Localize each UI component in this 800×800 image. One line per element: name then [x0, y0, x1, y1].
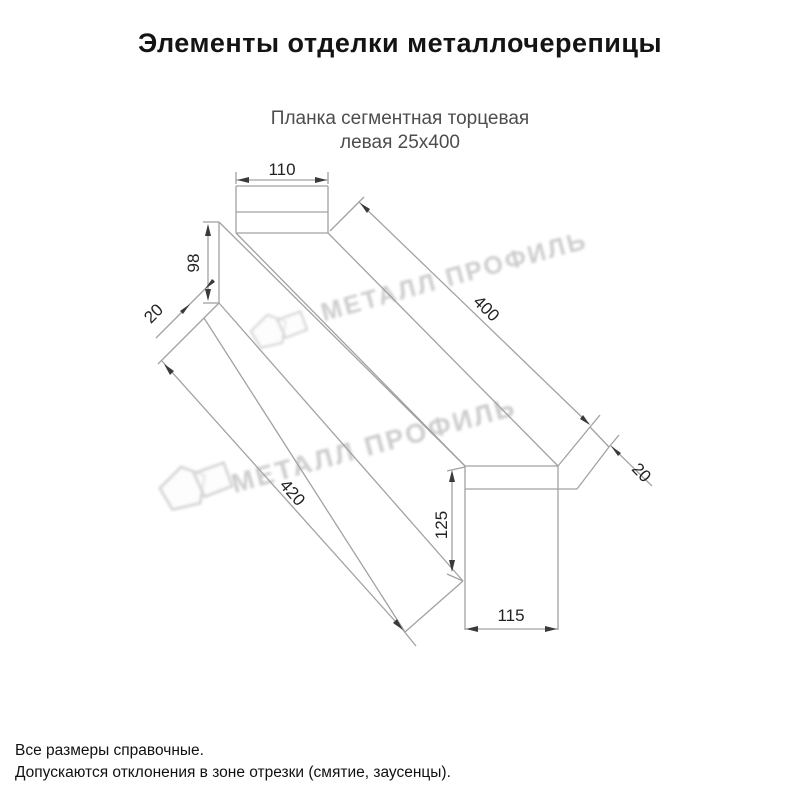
- footer-note-1: Все размеры справочные.: [15, 740, 451, 762]
- metall-profil-logo-icon: [246, 298, 312, 358]
- dimension-label-20: 20: [140, 300, 168, 328]
- drawing-sheet: Элементы отделки металлочерепицы Планка …: [0, 0, 800, 800]
- dimension-label-20: 20: [627, 459, 655, 487]
- dimension-label-110: 110: [268, 160, 295, 180]
- dimension-label-98: 98: [184, 254, 204, 273]
- dimension-label-115: 115: [497, 606, 524, 626]
- dimension-label-400: 400: [469, 292, 503, 326]
- footer-notes: Все размеры справочные. Допускаются откл…: [15, 740, 451, 784]
- watermark-text: МЕТАЛЛ ПРОФИЛЬ: [228, 391, 520, 500]
- product-subtitle: Планка сегментная торцевая левая 25х400: [0, 107, 800, 155]
- page-title: Элементы отделки металлочерепицы: [0, 28, 800, 59]
- product-subtitle-line1: Планка сегментная торцевая: [0, 107, 800, 131]
- product-subtitle-line2: левая 25х400: [0, 131, 800, 155]
- watermark-text: МЕТАЛЛ ПРОФИЛЬ: [318, 226, 591, 327]
- footer-note-2: Допускаются отклонения в зоне отрезки (с…: [15, 762, 451, 784]
- metall-profil-logo-icon: [150, 452, 242, 516]
- dimension-label-125: 125: [432, 511, 452, 539]
